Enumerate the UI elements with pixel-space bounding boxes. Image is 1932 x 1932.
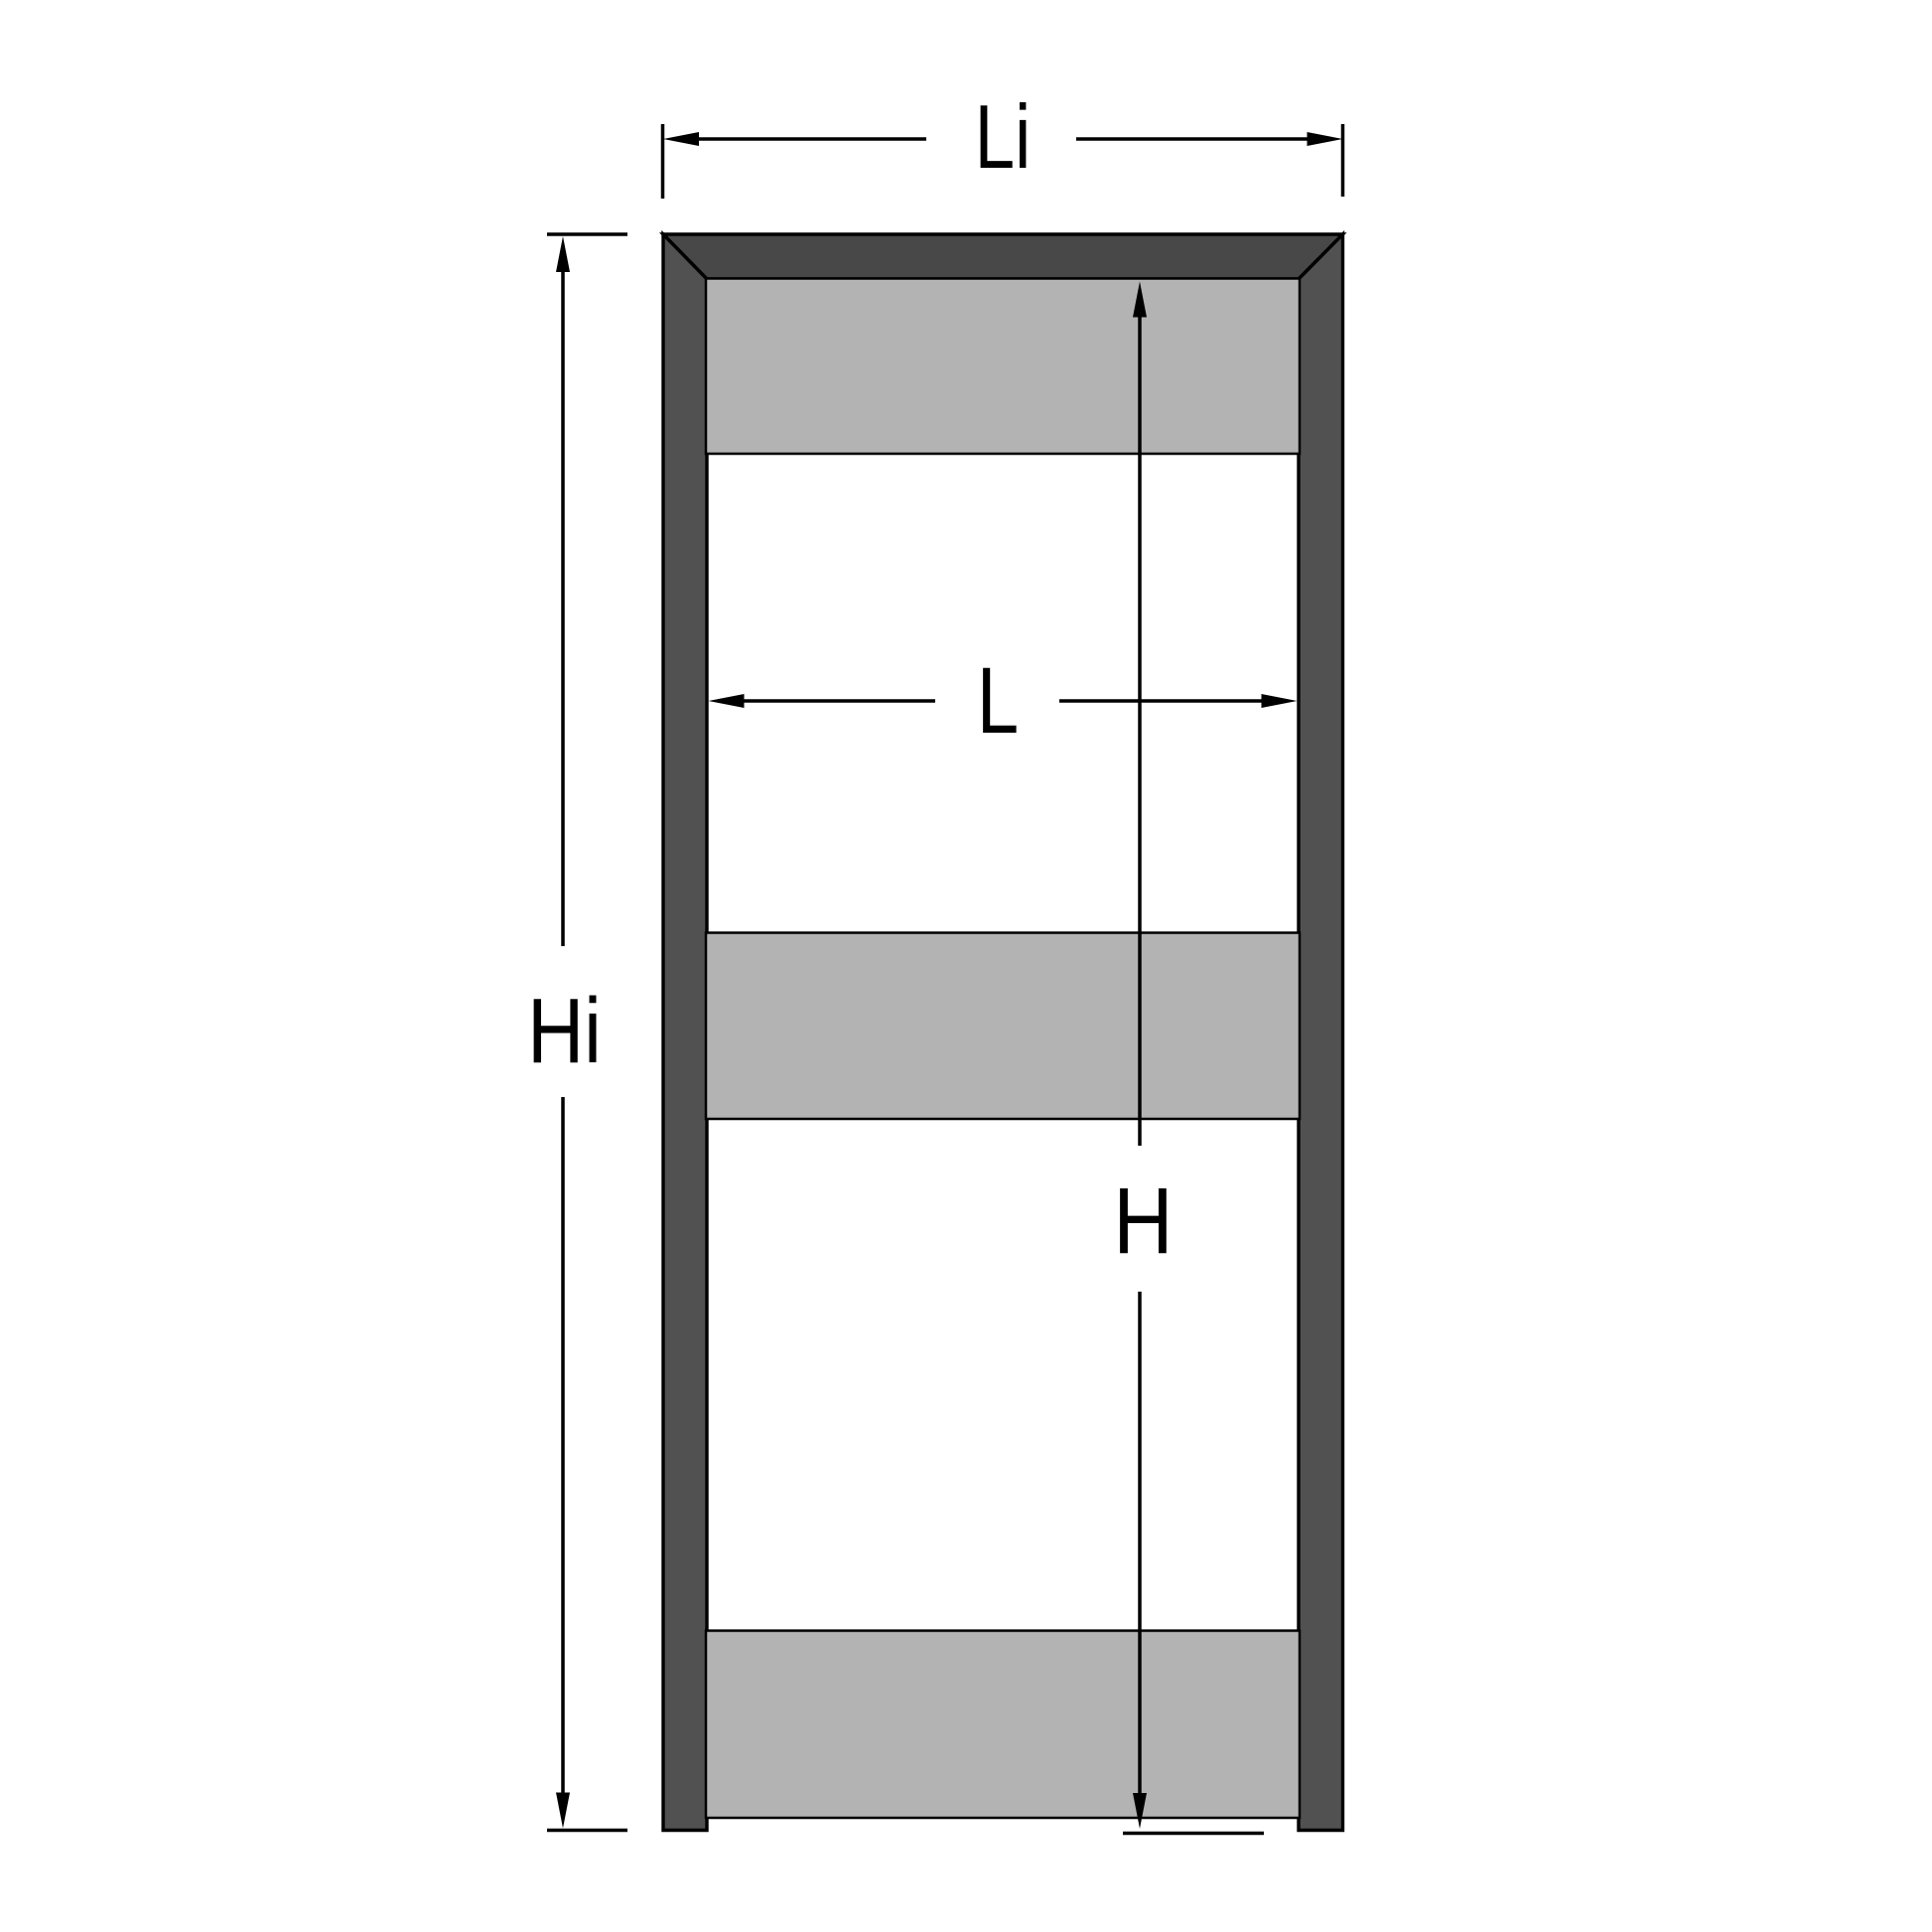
svg-text:Hi: Hi [527,980,602,1082]
svg-text:H: H [1113,1168,1173,1273]
svg-text:Li: Li [975,86,1032,188]
svg-text:L: L [977,648,1019,754]
